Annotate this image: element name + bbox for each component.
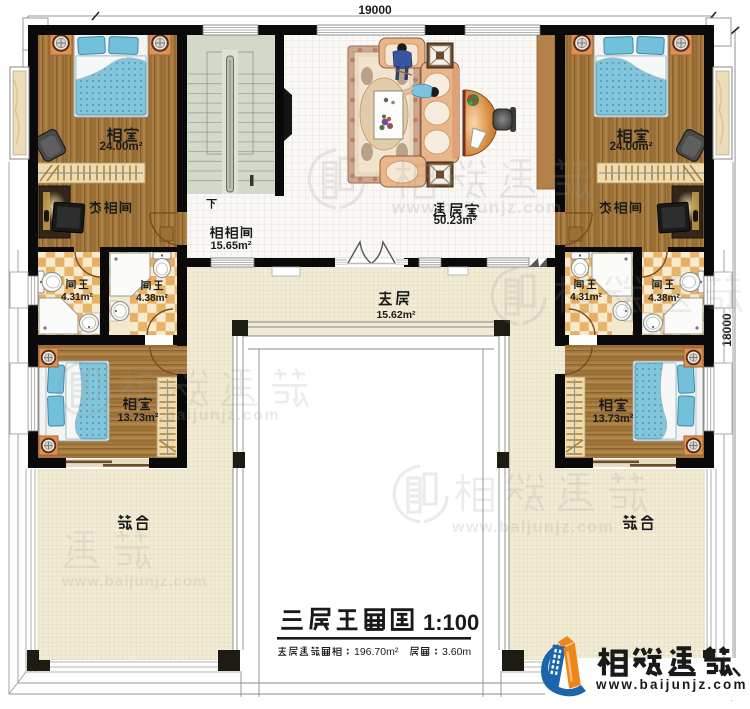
- svg-text:24.00m²: 24.00m²: [100, 141, 143, 153]
- svg-text:15.65m²: 15.65m²: [211, 240, 252, 252]
- svg-text:4.31m²: 4.31m²: [570, 292, 602, 303]
- svg-text:www.baijunjz.com: www.baijunjz.com: [451, 519, 614, 536]
- svg-text:19000: 19000: [358, 3, 392, 17]
- svg-text:24.00m²: 24.00m²: [610, 141, 653, 153]
- svg-text:196.70m²: 196.70m²: [354, 646, 399, 658]
- svg-text:3.60m: 3.60m: [442, 646, 471, 658]
- svg-text:www.baijunjz.com: www.baijunjz.com: [61, 573, 207, 590]
- svg-text:50.23m²: 50.23m²: [434, 215, 477, 227]
- svg-text:13.73m²: 13.73m²: [118, 412, 159, 424]
- svg-text:18000: 18000: [720, 313, 734, 347]
- svg-text:www.baijunjz.com: www.baijunjz.com: [595, 677, 748, 692]
- svg-text:15.62m²: 15.62m²: [376, 309, 416, 321]
- svg-text:1:100: 1:100: [423, 610, 479, 635]
- svg-text:4.38m²: 4.38m²: [648, 293, 680, 304]
- svg-text:www.baijunjz.com: www.baijunjz.com: [391, 198, 563, 217]
- svg-text:4.38m²: 4.38m²: [136, 293, 168, 304]
- svg-text:13.73m²: 13.73m²: [593, 413, 634, 425]
- svg-text:4.31m²: 4.31m²: [61, 292, 93, 303]
